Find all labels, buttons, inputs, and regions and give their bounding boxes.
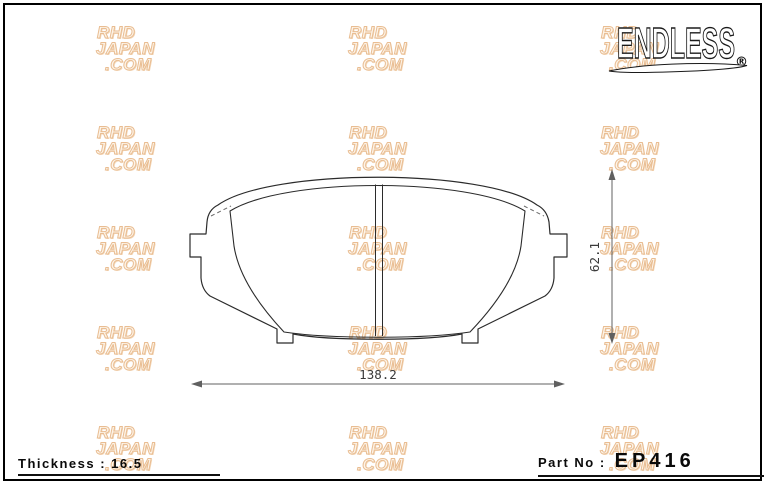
endless-logo: ENDLESS ® xyxy=(609,19,748,72)
height-dimension-label: 62.1 xyxy=(587,242,602,272)
part-number-value: EP416 xyxy=(615,450,695,473)
thickness-label: Thickness : 16.5 xyxy=(18,456,220,476)
width-dimension: 138.2 xyxy=(191,367,565,388)
pad-outer-outline xyxy=(190,177,567,343)
height-dimension: 62.1 xyxy=(587,169,616,344)
brake-pad-drawing: 138.2 62.1 ENDLESS ® xyxy=(0,0,768,493)
width-dim-arrow-left xyxy=(191,381,202,388)
width-dim-arrow-right xyxy=(554,381,565,388)
part-no-text: Part No : xyxy=(538,455,606,470)
thickness-text: Thickness : 16.5 xyxy=(18,456,142,471)
pad-friction-outline xyxy=(230,186,525,338)
height-dim-arrow-bottom xyxy=(609,333,616,344)
height-dim-arrow-top xyxy=(609,169,616,180)
part-number-label: Part No : EP416 xyxy=(538,450,764,477)
width-dimension-label: 138.2 xyxy=(359,367,397,382)
endless-logo-text: ENDLESS xyxy=(617,19,735,68)
